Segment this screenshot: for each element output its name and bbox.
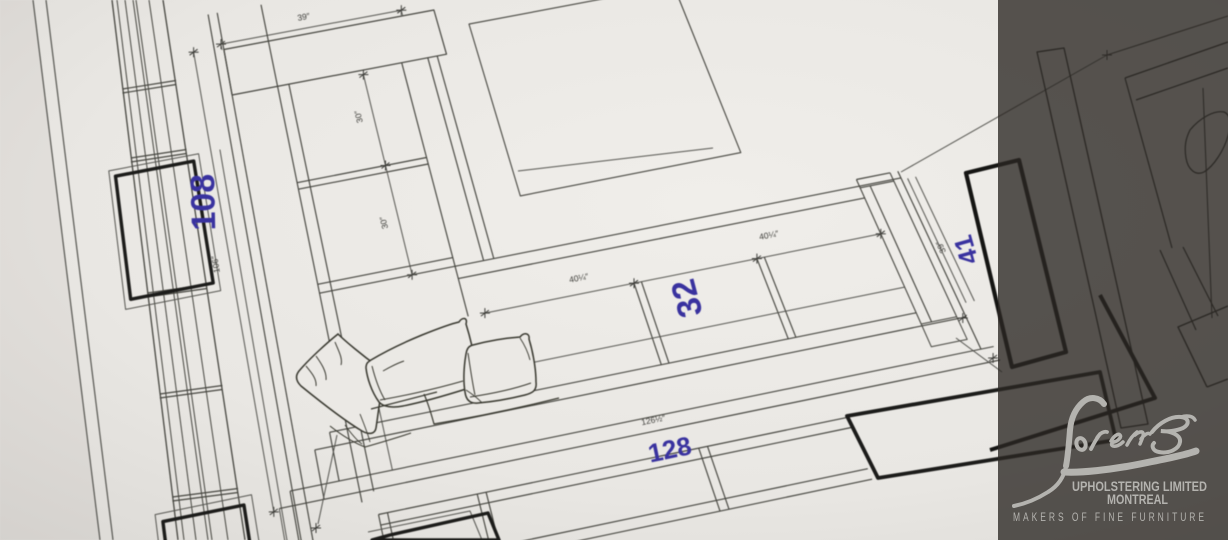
svg-text:108: 108 <box>184 173 223 231</box>
svg-text:MAKERS OF FINE FURNITURE: MAKERS OF FINE FURNITURE <box>1013 512 1207 524</box>
svg-text:MONTREAL: MONTREAL <box>1107 492 1168 507</box>
